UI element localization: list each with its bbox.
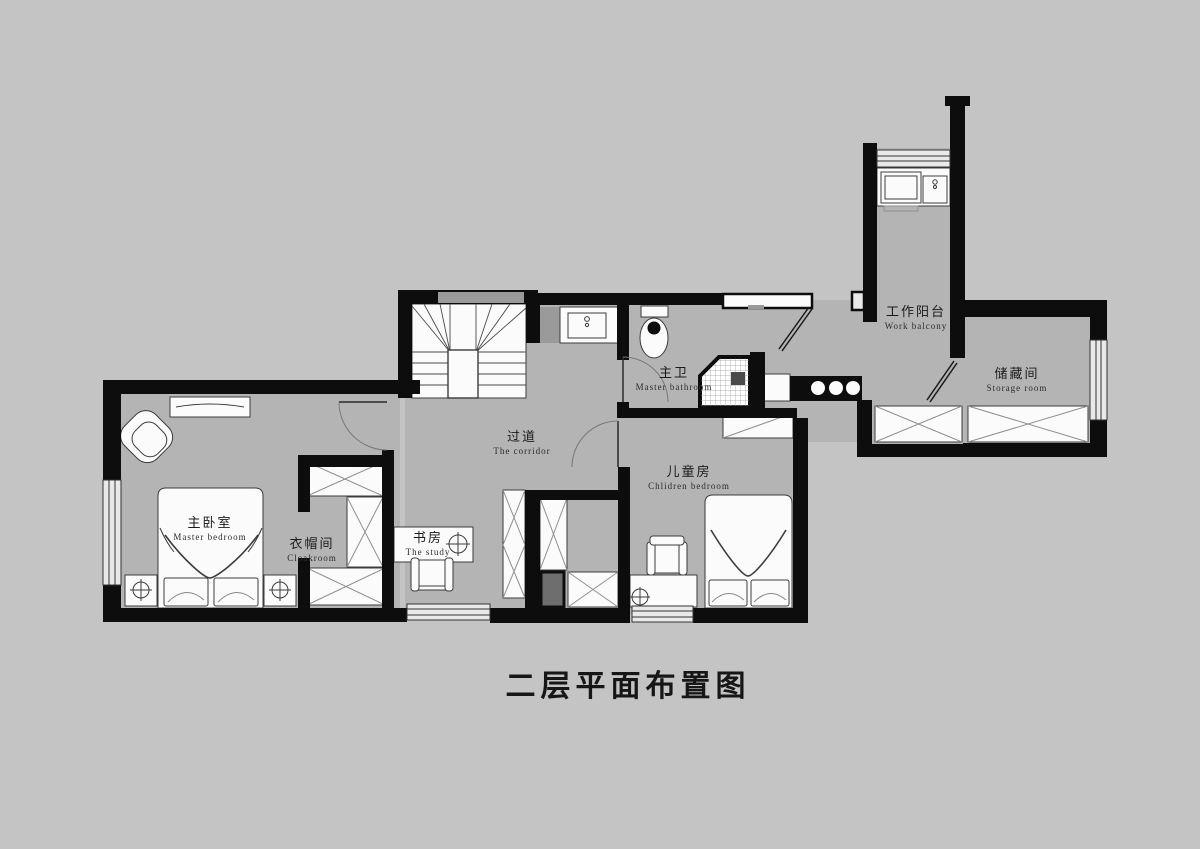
children-chair [647,536,687,575]
balcony-access-window [723,294,812,309]
hall-dark-cabinet [541,572,564,607]
bathroom-bottom-wall [625,408,797,418]
balcony-top-window [877,150,950,167]
landing-stub-wall [857,400,872,444]
master-bed [158,488,263,608]
stair-left-wall [398,295,412,398]
hall-cabinet-left [503,490,525,598]
dresser [170,397,250,417]
bathroom-right-wall [750,352,765,408]
storage-right-wall-upper [1090,317,1107,340]
cloakroom-wardrobe-right [347,497,383,567]
floor-plan-drawing [0,0,1200,849]
study-chair [411,558,453,591]
hall-cabinet-bottom [568,572,618,607]
cloakroom-wardrobe-bottom [307,568,385,605]
master-left-wall-upper [103,380,121,480]
storage-right-window [1090,340,1107,420]
bottom-wall-west [103,608,407,622]
stairs [412,304,526,398]
study-bottom-window [407,604,490,620]
wall-notch [852,292,864,310]
cloakroom-corridor-wall [382,450,394,622]
children-bottom-window [632,606,693,622]
storage-top-wall [963,300,1107,317]
stair-top-inset [438,292,524,303]
bottom-wall-children [693,608,807,623]
master-top-wall [103,380,420,394]
landing-bottom-wall [857,444,967,457]
bathroom-left-wall [617,303,629,360]
nook-vertical-wall [525,490,540,623]
hall-wardrobe [540,498,567,570]
children-bed [705,495,792,608]
storage-right-wall-lower [1090,420,1107,457]
plan-title: 二层平面布置图 [506,661,751,705]
nightstand-right [264,575,296,606]
floor-plan-page: { "title": "二层平面布置图", "rooms": [ { "name… [0,0,1200,849]
cloakroom-left-stub-upper [298,455,310,512]
master-left-window [103,480,121,585]
sink-icon [923,176,947,203]
washing-machine-icon [881,172,921,203]
landing-console [762,374,862,401]
storage-bottom-wall [963,443,1107,457]
cloakroom-left-stub-lower [298,558,310,610]
study-desk [394,527,473,562]
storage-cabinet [968,406,1088,442]
bottom-wall-mid [490,608,630,623]
landing-storage-cabinet [875,406,962,442]
nightstand-left [125,575,157,606]
cloakroom-top-wall [298,455,385,467]
cloakroom-wardrobe-top [307,462,383,496]
balcony-right-wall [950,100,965,358]
children-right-wall [793,418,808,623]
balcony-right-wall-cap [945,96,970,106]
nook-top-wall [540,490,623,500]
bathroom-vanity [540,307,620,343]
balcony-counter [877,168,950,211]
toilet-icon [640,306,668,358]
children-desk [630,575,697,607]
